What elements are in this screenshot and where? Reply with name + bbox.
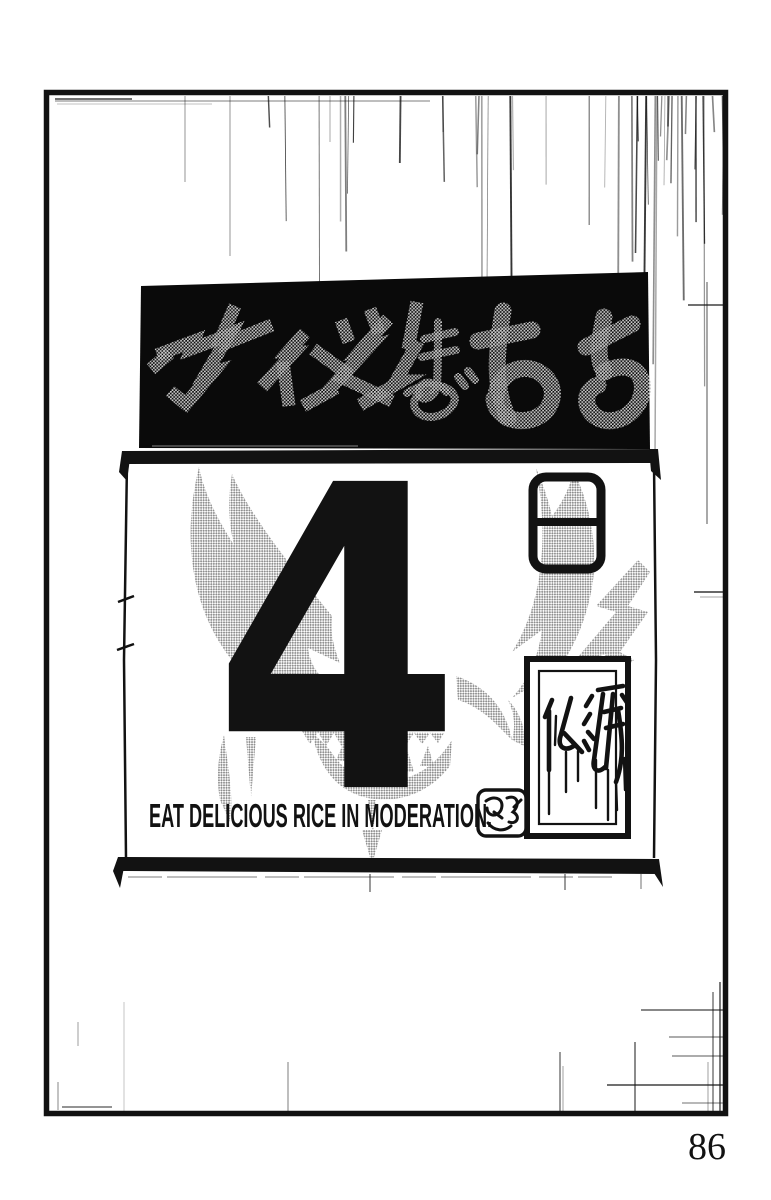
- page-number: 86: [688, 1126, 726, 1168]
- manga-page: カイメツまであと 仏滅 日: [0, 0, 771, 1200]
- page-art: 4: [0, 0, 771, 1200]
- banner: [139, 272, 650, 449]
- calendar-sheet: 4: [113, 397, 663, 888]
- rokuyo-box: [527, 659, 628, 836]
- caption-text: EAT DELICIOUS RICE IN MODERATION.: [149, 797, 492, 834]
